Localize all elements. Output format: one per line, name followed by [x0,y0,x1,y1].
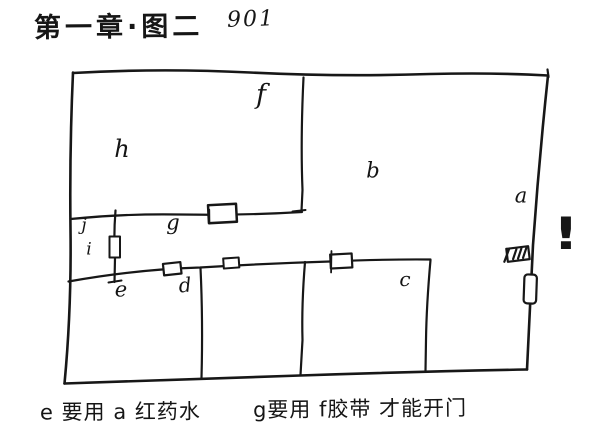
door-marker-i [110,237,121,258]
note-g-needs-f: g要用 f胶带 才能开门 [253,392,467,424]
floorplan-sketch [0,0,600,446]
door-marker-g [208,204,237,223]
outer-wall-top [73,70,548,75]
room-label-h: h [114,137,129,161]
door-marker-right-wall [523,274,537,303]
room-label-g: g [166,213,179,234]
room-label-i: i [86,242,91,259]
wall-room-c-right [426,260,431,371]
room-label-a: a [515,186,528,207]
wall-room-divider-1 [201,268,203,378]
header: 第一章·图二 901 [34,5,275,44]
wall-room-divider-2 [301,262,306,375]
door-marker-small [223,257,239,268]
page-title: 第一章·图二 [34,4,204,45]
room-label-d: d [178,274,193,295]
room-label-e: e [115,280,127,301]
figure-code: 901 [227,6,276,33]
door-marker-c [330,250,353,273]
room-label-b: b [366,161,379,182]
room-label-f: f [256,82,266,109]
room-label-j: j [81,218,86,235]
note-e-needs-a: e 要用 a 红药水 [40,395,201,426]
outer-wall-right [527,76,548,370]
outer-wall-bottom [65,370,528,384]
wall-f-b-divider [302,78,304,212]
wall-h-corridor [71,212,303,219]
hatched-vent-icon [503,246,530,262]
sketch-root: 第一章·图二 901 f h b a j i g e d c ! e 要用 a … [0,0,600,446]
exclamation-mark: ! [553,212,579,256]
outer-wall-left [65,73,74,384]
room-label-c: c [399,269,410,289]
